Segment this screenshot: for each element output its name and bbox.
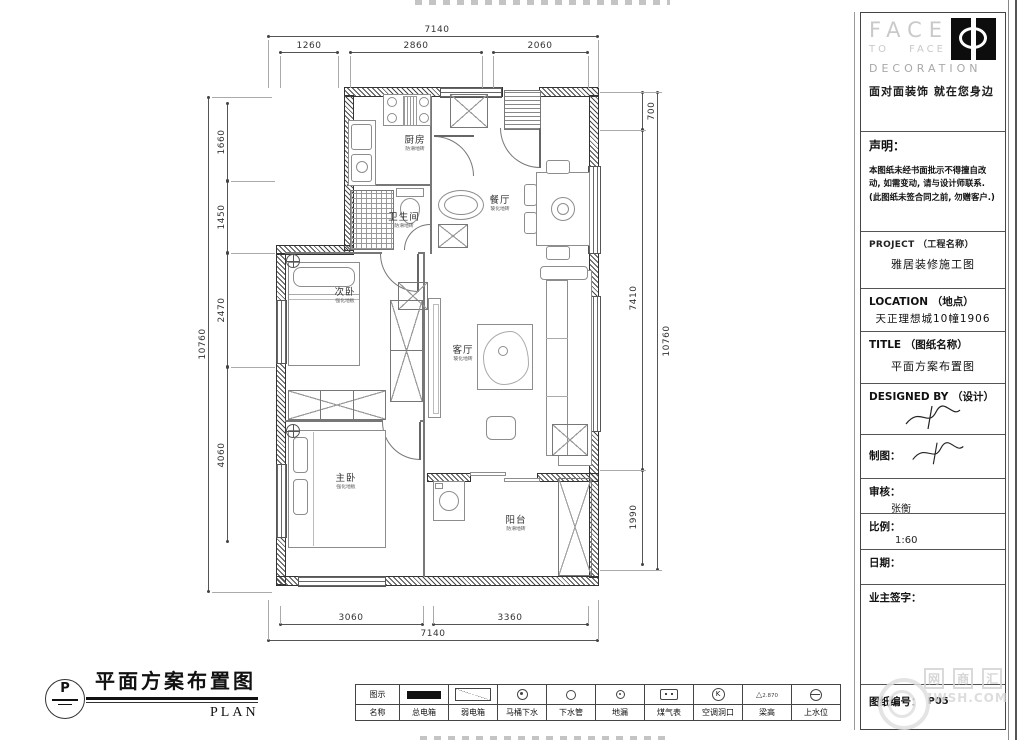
sofa-arm — [540, 266, 588, 280]
drawing-shape — [268, 40, 269, 88]
chair — [546, 246, 570, 260]
drawing-shape — [407, 691, 441, 699]
drawing-shape: 10760 — [662, 325, 672, 356]
duct — [438, 224, 468, 248]
title-rule — [86, 697, 258, 700]
project-label: PROJECT （工程名称） — [869, 237, 997, 250]
wardrobe — [390, 300, 423, 402]
brand-line3: DECORATION — [869, 62, 997, 75]
title-section: TITLE （图纸名称） 平面方案布置图 — [861, 331, 1005, 383]
scale-label: 比例： — [869, 519, 997, 534]
date-section: 日期： — [861, 549, 1005, 584]
drawing-shape: 次卧 — [333, 288, 357, 298]
location-label: LOCATION （地点） — [869, 294, 997, 309]
drawing-shape — [598, 40, 599, 88]
legend-symbol-main-power — [400, 685, 449, 705]
drawing-shape — [444, 195, 478, 215]
draft-signature — [909, 440, 967, 470]
legend-table: 图示 K △2.870 名称 总电箱 弱电箱 马桶下水 下水管 地漏 煤气表 空… — [355, 684, 841, 721]
watermark-char: 汇 — [982, 668, 1002, 689]
pillow — [293, 267, 355, 287]
sliding-door-leaf — [504, 478, 540, 482]
drawing-shape — [280, 606, 281, 624]
legend-symbol-toilet-drain — [498, 685, 547, 705]
clipped-footer-text — [420, 736, 670, 740]
drawing-shape: 阳台 — [504, 516, 528, 526]
drawing-shape: 防滑地砖 — [506, 527, 525, 532]
drawing-shape — [280, 56, 281, 88]
drawing-shape — [660, 689, 678, 700]
drawing-shape — [642, 92, 643, 130]
drawing-shape: 卫生间 — [388, 213, 420, 223]
drawing-shape — [285, 252, 382, 254]
drawing-shape: 强化地板 — [336, 485, 355, 490]
drawing-shape — [546, 338, 568, 339]
drawing-shape — [557, 203, 569, 215]
drawing-shape — [285, 420, 383, 422]
master-door-arc — [382, 422, 420, 460]
drawing-shape — [517, 689, 528, 700]
brand-tagline: 面对面装饰 就在您身边 — [869, 83, 997, 99]
project-section: PROJECT （工程名称） 雅居装修施工图 — [861, 231, 1005, 288]
kitchen-door-arc — [434, 136, 474, 176]
draft-section: 制图： — [861, 434, 1005, 478]
drawing-shape: 2060 — [528, 41, 553, 51]
drawing-shape — [338, 56, 339, 88]
drawing-shape: 10760 — [198, 328, 208, 359]
drawing-shape — [433, 606, 434, 624]
wardrobe — [288, 390, 386, 420]
scale-section: 比例： 1:60 — [861, 513, 1005, 549]
legend-symbol-row-label: 图示 — [356, 685, 400, 705]
room-label-dining: 餐厅玻化地砖 — [488, 196, 512, 213]
drawing-shape — [483, 331, 529, 385]
toilet-tank — [396, 188, 424, 197]
watermark: 网 商 汇 7WSH.COM — [896, 668, 1026, 705]
drawing-shape — [906, 406, 960, 424]
location-value: 天正理想城10幢1906 — [869, 311, 997, 326]
drawing-shape: 厨房 — [403, 136, 427, 146]
drawing-shape — [419, 113, 429, 123]
drawing-shape — [619, 693, 621, 695]
legend-name: 梁高 — [743, 705, 792, 721]
drawing-shape — [423, 606, 424, 624]
brand-logo-icon — [951, 18, 997, 60]
drawing-shape: 玻化地砖 — [453, 357, 472, 362]
drawing-shape — [810, 694, 820, 695]
drawing-shape — [350, 56, 351, 88]
drawing-shape: 7140 — [421, 629, 446, 639]
scale-value: 1:60 — [895, 535, 997, 546]
drawing-shape — [227, 253, 228, 367]
drawing-shape: 2470 — [217, 298, 227, 323]
brand-block: FACE TO FACE DECORATION 面对面装饰 就在您身边 — [861, 13, 1005, 131]
drawing-shape — [588, 56, 589, 88]
sink — [351, 124, 372, 150]
drawing-shape — [657, 92, 658, 570]
drawing-shape — [588, 606, 589, 624]
drawing-shape — [320, 390, 321, 420]
watermark-char: 商 — [953, 668, 973, 689]
dimension-line — [268, 36, 598, 37]
drawing-shape — [280, 624, 423, 625]
brand-line2: TO FACE — [869, 44, 949, 55]
location-section: LOCATION （地点） 天正理想城10幢1906 — [861, 288, 1005, 331]
drawing-shape — [52, 699, 78, 701]
window — [276, 300, 287, 364]
drawing-shape — [387, 113, 397, 123]
sliding-door-leaf — [470, 472, 506, 476]
drawing-shape: 图示 K △2.870 名称 总电箱 弱电箱 马桶下水 下水管 地漏 煤气表 空… — [356, 685, 841, 721]
drawing-shape: 名称 总电箱 弱电箱 马桶下水 下水管 地漏 煤气表 空调洞口 梁高 上水位 — [356, 705, 841, 721]
pillow — [293, 437, 308, 473]
drawing-shape — [231, 253, 275, 254]
plan-subtitle: PLAN — [210, 705, 259, 721]
room-label-kitchen: 厨房防滑地砖 — [403, 136, 427, 153]
drawing-shape — [428, 474, 470, 481]
drawing-shape: 强化地板 — [335, 299, 354, 304]
legend-symbol-ac-opening: K — [694, 685, 743, 705]
review-value: 张衡 — [891, 500, 997, 513]
drawing-shape — [540, 88, 598, 96]
drawing-shape — [231, 181, 275, 182]
drawing-shape: 2.870 — [762, 693, 778, 699]
drawing-shape — [390, 350, 423, 351]
room-label-bedroom2: 次卧强化地板 — [333, 288, 357, 305]
drawing-shape — [909, 440, 967, 466]
drawing-shape — [600, 470, 646, 471]
drawing-shape — [350, 52, 482, 53]
drawing-shape — [642, 470, 643, 565]
legend-name: 空调洞口 — [694, 705, 743, 721]
room-label-bathroom: 卫生间防滑地砖 — [388, 213, 420, 230]
drawing-shape: 图示 K △2.870 — [356, 685, 841, 705]
drawing-shape — [642, 130, 643, 470]
drawing-shape — [439, 491, 459, 511]
drawing-shape: 3360 — [498, 613, 523, 623]
date-label: 日期： — [869, 555, 997, 570]
drawing-shape — [972, 20, 975, 58]
drawing-shape: 网 商 汇 — [924, 668, 1026, 689]
drawing-shape — [227, 181, 228, 253]
chair — [524, 184, 537, 206]
chair — [524, 212, 537, 234]
drawing-shape — [419, 422, 421, 460]
title-label: TITLE （图纸名称） — [869, 337, 997, 352]
drawing-shape — [912, 443, 963, 460]
drawing-shape — [227, 367, 228, 542]
drawing-shape: 1450 — [217, 205, 227, 230]
legend-name: 马桶下水 — [498, 705, 547, 721]
drawing-shape — [600, 92, 662, 93]
statement-text: 本图纸未经书面批示不得擅自改动, 如需变动, 请与设计师联系. (此图纸未签合同… — [869, 164, 997, 204]
drawing-shape: K — [712, 688, 725, 701]
drawing-shape — [520, 692, 523, 695]
plan-marker: P — [45, 679, 85, 719]
statement-label: 声明： — [869, 137, 997, 154]
entry-door-arc — [500, 128, 540, 168]
drawing-shape: 1660 — [217, 130, 227, 155]
drawing-shape — [435, 483, 443, 489]
drawing-shape — [598, 600, 599, 640]
drawing-shape — [434, 135, 474, 137]
title-rule — [86, 702, 258, 703]
drawing-shape — [546, 396, 568, 397]
drawing-shape — [433, 624, 588, 625]
drawing-shape: FACE TO FACE — [869, 18, 949, 55]
drawing-shape — [387, 97, 397, 107]
plan-title: 平面方案布置图 — [95, 665, 256, 694]
balcony-window — [558, 478, 592, 576]
frame-line — [1008, 0, 1009, 740]
drawing-shape: 制图： — [869, 440, 997, 470]
drawing-shape — [539, 128, 541, 168]
drawing-shape — [280, 52, 338, 53]
drawing-shape — [566, 690, 576, 700]
drawing-shape: 防滑地砖 — [391, 224, 416, 229]
pillow — [293, 479, 308, 515]
drawing-shape — [810, 689, 822, 701]
legend-symbol-beam-height: △2.870 — [743, 685, 792, 705]
designer-signature — [869, 404, 997, 434]
coffee-table — [486, 416, 516, 440]
drawing-shape — [58, 704, 72, 706]
drawing-shape — [423, 254, 425, 422]
drawing-shape — [353, 390, 354, 420]
drawing-shape — [231, 367, 275, 368]
drawing-shape: 防滑地砖 — [405, 147, 424, 152]
drawing-shape — [208, 97, 209, 592]
drawing-sheet: 厨房防滑地砖 卫生间防滑地砖 餐厅玻化地砖 次卧强化地板 客厅玻化地砖 主卧强化… — [0, 0, 1027, 740]
drawing-shape: 1990 — [629, 505, 639, 530]
legend-symbol-low-voltage — [449, 685, 498, 705]
legend-symbol-drain-pipe — [547, 685, 596, 705]
drawing-shape — [313, 432, 314, 546]
drawing-shape: FACE TO FACE — [869, 18, 997, 60]
drawing-shape — [902, 404, 964, 430]
drawing-shape — [419, 97, 429, 107]
legend-name: 上水位 — [792, 705, 841, 721]
frame-line — [854, 12, 855, 730]
drawing-shape: 玻化地砖 — [490, 207, 509, 212]
drawing-shape — [356, 161, 368, 173]
drawing-shape — [212, 592, 272, 593]
window — [298, 576, 386, 587]
drawing-shape — [482, 56, 483, 88]
watermark-char: 网 — [924, 668, 944, 689]
frame-line — [1015, 0, 1017, 740]
entry-door-leaf — [504, 90, 541, 130]
title-value: 平面方案布置图 — [869, 358, 997, 374]
drawing-shape — [433, 304, 439, 414]
chair — [546, 160, 570, 174]
room-label-master: 主卧强化地板 — [334, 474, 358, 491]
drawing-shape — [616, 690, 625, 699]
drawing-shape — [268, 640, 598, 641]
window — [276, 464, 287, 538]
drawing-shape — [227, 103, 228, 181]
drawing-shape — [455, 688, 491, 701]
draft-label: 制图： — [869, 448, 901, 463]
drawing-shape: 7140 — [425, 25, 450, 35]
drawing-shape — [493, 56, 494, 88]
drawing-shape — [600, 130, 646, 131]
light-symbol — [286, 254, 300, 268]
legend-name: 总电箱 — [400, 705, 449, 721]
legend-name-row-label: 名称 — [356, 705, 400, 721]
legend-symbol-water-supply — [792, 685, 841, 705]
legend-name: 弱电箱 — [449, 705, 498, 721]
legend-name: 地漏 — [596, 705, 645, 721]
drawing-shape: 700 — [647, 102, 657, 121]
room-label-balcony: 阳台防滑地砖 — [504, 516, 528, 533]
legend-symbol-floor-drain — [596, 685, 645, 705]
drawing-shape: 主卧 — [334, 474, 358, 484]
legend-name: 煤气表 — [645, 705, 694, 721]
drawing-shape: 1260 — [297, 41, 322, 51]
statement-section: 声明： 本图纸未经书面批示不得擅自改动, 如需变动, 请与设计师联系. (此图纸… — [861, 131, 1005, 231]
drawing-shape: 客厅 — [451, 346, 475, 356]
room-label-living: 客厅玻化地砖 — [451, 346, 475, 363]
project-value: 雅居装修施工图 — [869, 256, 997, 272]
watermark-domain: 7WSH.COM — [924, 691, 1026, 705]
drawing-shape: 餐厅 — [488, 196, 512, 206]
designed-by-label: DESIGNED BY （设计） — [869, 389, 997, 404]
light-symbol — [286, 424, 300, 438]
drawing-shape — [498, 346, 508, 356]
drawing-shape — [212, 97, 272, 98]
drawing-shape: 2860 — [404, 41, 429, 51]
designed-by-section: DESIGNED BY （设计） — [861, 383, 1005, 434]
legend-name: 下水管 — [547, 705, 596, 721]
side-table — [552, 424, 588, 456]
review-label: 审核： — [869, 484, 997, 499]
cabinet — [450, 94, 488, 128]
plan-marker-letter: P — [46, 680, 84, 698]
title-block: FACE TO FACE DECORATION 面对面装饰 就在您身边 声明： … — [860, 12, 1006, 730]
drawing-shape: 7410 — [629, 286, 639, 311]
clipped-header-text — [415, 0, 670, 5]
legend-symbol-gas-meter — [645, 685, 694, 705]
brand-line1: FACE — [869, 18, 949, 42]
review-section: 审核： 张衡 — [861, 478, 1005, 513]
drawing-shape: 4060 — [217, 443, 227, 468]
drawing-shape — [888, 690, 916, 718]
drawing-shape — [268, 600, 269, 640]
drawing-shape: 3060 — [339, 613, 364, 623]
drawing-shape — [600, 570, 662, 571]
owner-signature-label: 业主签字： — [869, 590, 997, 605]
drawing-shape — [423, 422, 425, 577]
drawing-shape — [493, 52, 588, 53]
drawing-shape — [403, 96, 417, 126]
